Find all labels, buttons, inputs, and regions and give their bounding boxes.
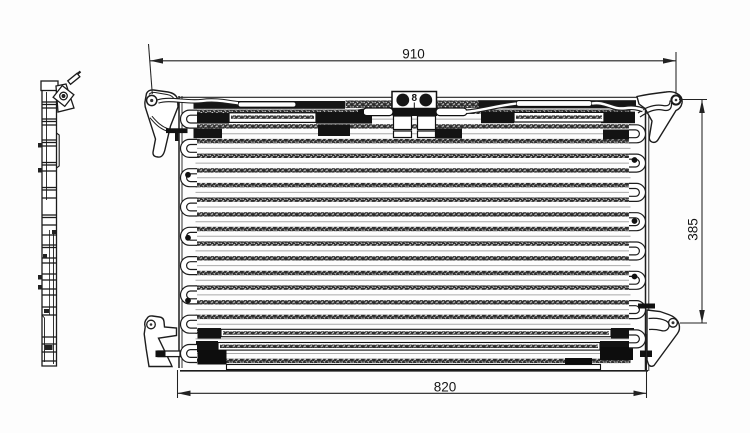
svg-text:8: 8 <box>412 93 418 104</box>
svg-text:385: 385 <box>686 218 701 241</box>
svg-text:910: 910 <box>402 47 425 62</box>
svg-text:820: 820 <box>434 380 457 395</box>
